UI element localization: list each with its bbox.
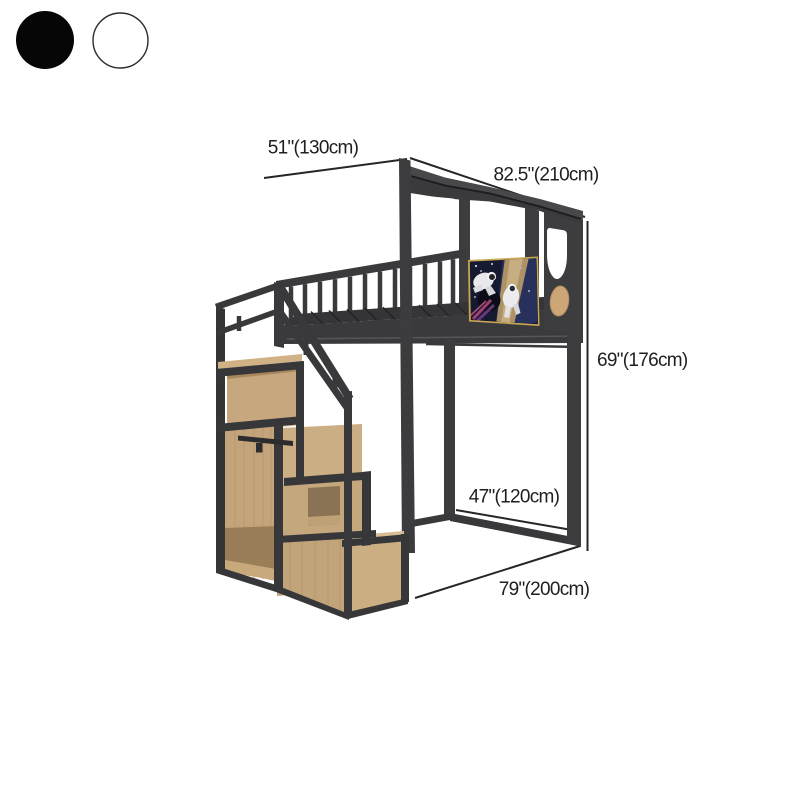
svg-text:69"(176cm): 69"(176cm) — [597, 350, 688, 371]
svg-text:82.5"(210cm): 82.5"(210cm) — [493, 165, 598, 186]
svg-text:47"(120cm): 47"(120cm) — [469, 487, 560, 508]
svg-text:51"(130cm): 51"(130cm) — [268, 138, 359, 159]
svg-text:79"(200cm): 79"(200cm) — [499, 579, 590, 600]
